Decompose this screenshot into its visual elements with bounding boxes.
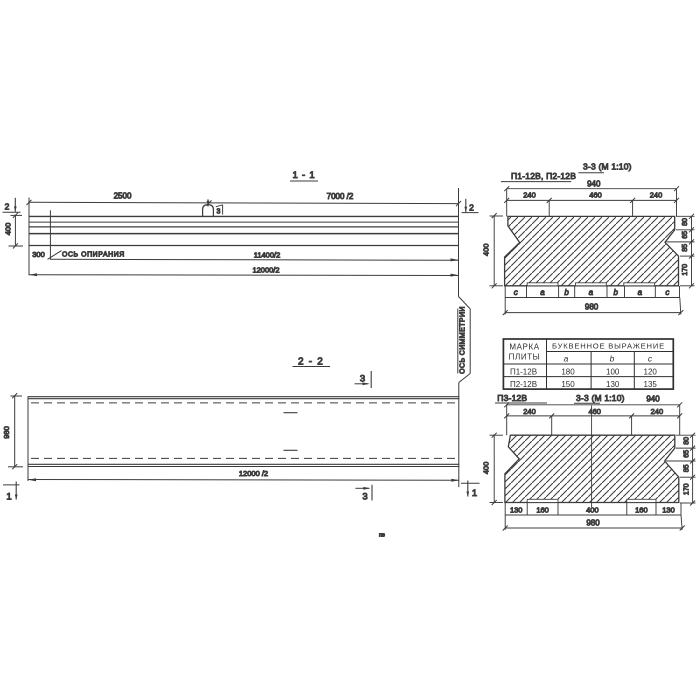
svg-text:65: 65: [683, 450, 690, 458]
svg-text:150: 150: [561, 380, 575, 389]
svg-text:65: 65: [682, 231, 689, 239]
svg-text:400: 400: [482, 462, 491, 475]
svg-text:2500: 2500: [114, 192, 132, 201]
svg-text:3: 3: [362, 491, 367, 502]
svg-text:130: 130: [606, 380, 620, 389]
svg-text:240: 240: [523, 191, 536, 200]
svg-text:3-3 (М 1:10): 3-3 (М 1:10): [576, 393, 625, 403]
svg-text:БУКВЕННОЕ ВЫРАЖЕНИЕ: БУКВЕННОЕ ВЫРАЖЕНИЕ: [552, 342, 665, 351]
svg-text:400: 400: [482, 244, 491, 257]
svg-text:240: 240: [651, 407, 664, 416]
svg-text:11400/2: 11400/2: [254, 251, 281, 260]
svg-text:2: 2: [5, 202, 10, 212]
svg-text:240: 240: [523, 407, 536, 416]
svg-text:460: 460: [588, 407, 601, 416]
svg-text:940: 940: [646, 395, 660, 404]
svg-text:160: 160: [536, 506, 549, 515]
svg-text:П1-12В: П1-12В: [510, 367, 537, 376]
svg-text:a: a: [540, 288, 545, 297]
svg-text:130: 130: [662, 506, 675, 515]
svg-text:a: a: [638, 288, 643, 297]
svg-text:1: 1: [6, 492, 11, 503]
svg-text:135: 135: [644, 380, 658, 389]
svg-text:ОСЬ СИММЕТРИИ: ОСЬ СИММЕТРИИ: [460, 306, 467, 374]
svg-text:a: a: [564, 354, 569, 364]
svg-text:940: 940: [587, 179, 601, 188]
svg-text:1 - 1: 1 - 1: [292, 170, 315, 181]
svg-text:1: 1: [472, 488, 477, 499]
svg-text:П1-12В, П2-12В: П1-12В, П2-12В: [511, 171, 576, 181]
svg-text:П3-12В: П3-12В: [497, 393, 527, 403]
svg-text:3-3 (М 1:10): 3-3 (М 1:10): [583, 162, 632, 172]
svg-text:170: 170: [683, 483, 690, 495]
svg-text:85: 85: [682, 244, 689, 252]
svg-text:12000 /2: 12000 /2: [239, 469, 268, 478]
svg-text:ПЛИТЫ: ПЛИТЫ: [509, 353, 541, 362]
svg-text:170: 170: [682, 264, 689, 276]
svg-text:2: 2: [469, 203, 474, 213]
svg-text:400: 400: [4, 223, 13, 236]
svg-text:7000 /2: 7000 /2: [327, 192, 354, 201]
svg-text:120: 120: [644, 367, 658, 376]
svg-text:400: 400: [586, 506, 599, 515]
svg-text:ОСЬ ОПИРАНИЯ: ОСЬ ОПИРАНИЯ: [62, 252, 125, 259]
svg-text:3: 3: [360, 374, 365, 385]
svg-text:80: 80: [682, 218, 689, 226]
svg-text:b: b: [613, 288, 618, 297]
svg-text:a: a: [589, 288, 594, 297]
svg-text:b: b: [564, 288, 569, 297]
svg-text:3: 3: [217, 209, 221, 216]
svg-text:980: 980: [585, 303, 599, 312]
svg-text:980: 980: [586, 519, 600, 528]
svg-text:12000/2: 12000/2: [252, 265, 279, 274]
svg-text:240: 240: [650, 191, 663, 200]
svg-text:100: 100: [606, 367, 620, 376]
svg-text:460: 460: [589, 191, 602, 200]
svg-text:85: 85: [683, 464, 690, 472]
svg-text:2 - 2: 2 - 2: [298, 357, 324, 368]
svg-text:980: 980: [2, 426, 11, 439]
svg-text:b: b: [610, 354, 615, 364]
svg-text:180: 180: [561, 367, 575, 376]
svg-text:c: c: [665, 288, 669, 297]
svg-text:300: 300: [32, 250, 45, 259]
svg-text:80: 80: [683, 437, 690, 445]
svg-text:160: 160: [635, 506, 648, 515]
svg-text:МАРКА: МАРКА: [509, 343, 539, 352]
svg-text:c: c: [514, 288, 518, 297]
svg-text:130: 130: [510, 506, 523, 515]
svg-text:П2-12В: П2-12В: [510, 380, 537, 389]
svg-text:пв: пв: [379, 533, 385, 539]
